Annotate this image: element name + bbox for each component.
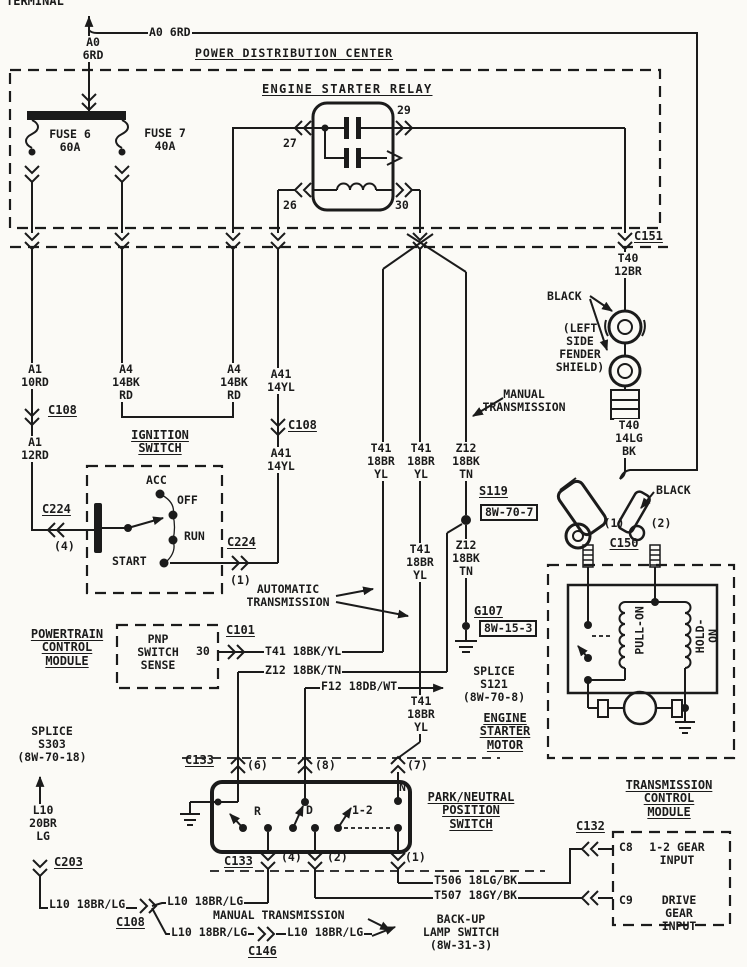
- auto-trans-arrow-2: [336, 602, 408, 616]
- pdc-box: [10, 70, 660, 228]
- pnp-lever-1-2: [338, 808, 351, 828]
- ignition-switch-box: [87, 466, 222, 593]
- pnp-lever-d: [293, 806, 303, 828]
- filled-elements: [27, 111, 689, 832]
- tcm-box: [613, 832, 730, 925]
- auto-trans-arrow-1: [336, 589, 373, 596]
- wiring-diagram-page: TERMINALA0 6RDA0 6RDPOWER DISTRIBUTION C…: [0, 0, 747, 967]
- manual-trans-arrow-1: [473, 398, 503, 416]
- switch-dashed-links: [344, 636, 613, 828]
- relay-coil: [337, 184, 376, 191]
- splice-s119-dot: [461, 515, 471, 525]
- terminal-studs: [583, 545, 660, 567]
- backup-lamp-arrow: [372, 927, 395, 936]
- ignition-rotary-arc: [160, 494, 175, 562]
- battery-bus-bar: [27, 111, 126, 120]
- c150-clamp: [556, 478, 652, 548]
- ground-symbols: [180, 641, 695, 825]
- manual-trans-arrow-2: [368, 919, 390, 930]
- pcm-box: [117, 625, 218, 688]
- starter-motor-box: [548, 565, 734, 758]
- hold-on-coil: [685, 602, 691, 668]
- wires: [32, 16, 697, 934]
- pnp-lever-r: [230, 814, 243, 828]
- c133-connector-rows: [182, 758, 545, 871]
- ignition-contact-bar: [94, 503, 102, 553]
- pull-on-coil: [620, 602, 626, 668]
- ground-g107-dot: [462, 622, 470, 630]
- fuse-elements: [26, 120, 128, 148]
- connector-chevrons: [25, 94, 632, 941]
- wiring-diagram-lines: [0, 0, 747, 967]
- starter-switch-lever: [578, 646, 588, 658]
- pnp-switch-outline: [212, 782, 410, 852]
- bushing-cylinder: [611, 390, 639, 419]
- ignition-lever: [128, 518, 163, 528]
- solid-outlines: [212, 103, 717, 852]
